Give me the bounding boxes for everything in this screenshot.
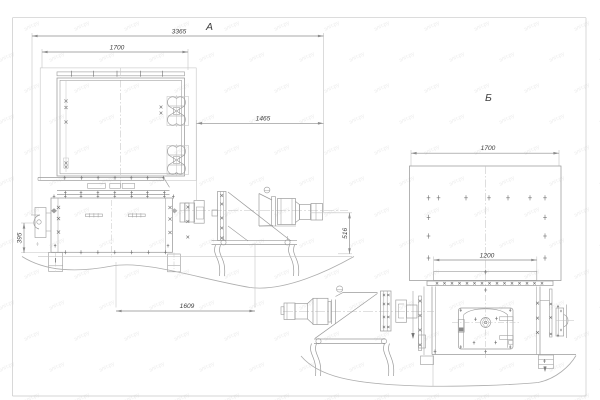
svg-text:1700: 1700 [110, 45, 125, 52]
svg-text:Б: Б [485, 92, 492, 104]
svg-text:516: 516 [342, 227, 349, 238]
svg-text:1465: 1465 [256, 115, 271, 122]
svg-text:А: А [205, 21, 213, 33]
svg-text:3365: 3365 [172, 29, 187, 36]
svg-text:1200: 1200 [480, 252, 495, 259]
svg-text:395: 395 [17, 232, 24, 243]
svg-text:1700: 1700 [481, 145, 496, 152]
svg-text:1609: 1609 [180, 303, 195, 310]
